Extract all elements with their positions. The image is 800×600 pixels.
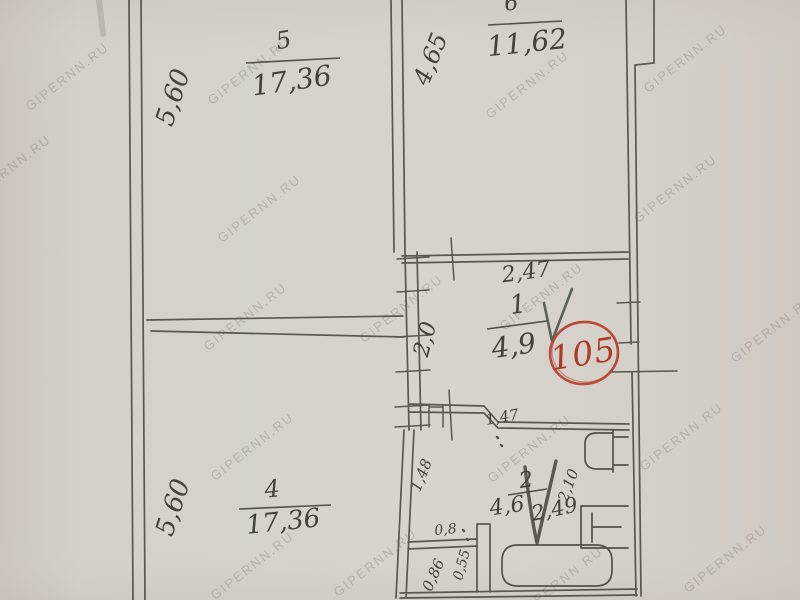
- dim-niche-width: 0,8: [434, 521, 458, 539]
- room2-area: 4,6: [487, 492, 526, 522]
- room4-number: 4: [262, 474, 281, 504]
- scanned-floor-plan: GIPERNN.RU GIPERNN.RU GIPERNN.RU GIPERNN…: [0, 0, 800, 600]
- floorplan-svg: GIPERNN.RU GIPERNN.RU GIPERNN.RU GIPERNN…: [0, 0, 800, 600]
- room6-number: 6: [503, 0, 520, 17]
- room1-area: 4,9: [488, 326, 538, 365]
